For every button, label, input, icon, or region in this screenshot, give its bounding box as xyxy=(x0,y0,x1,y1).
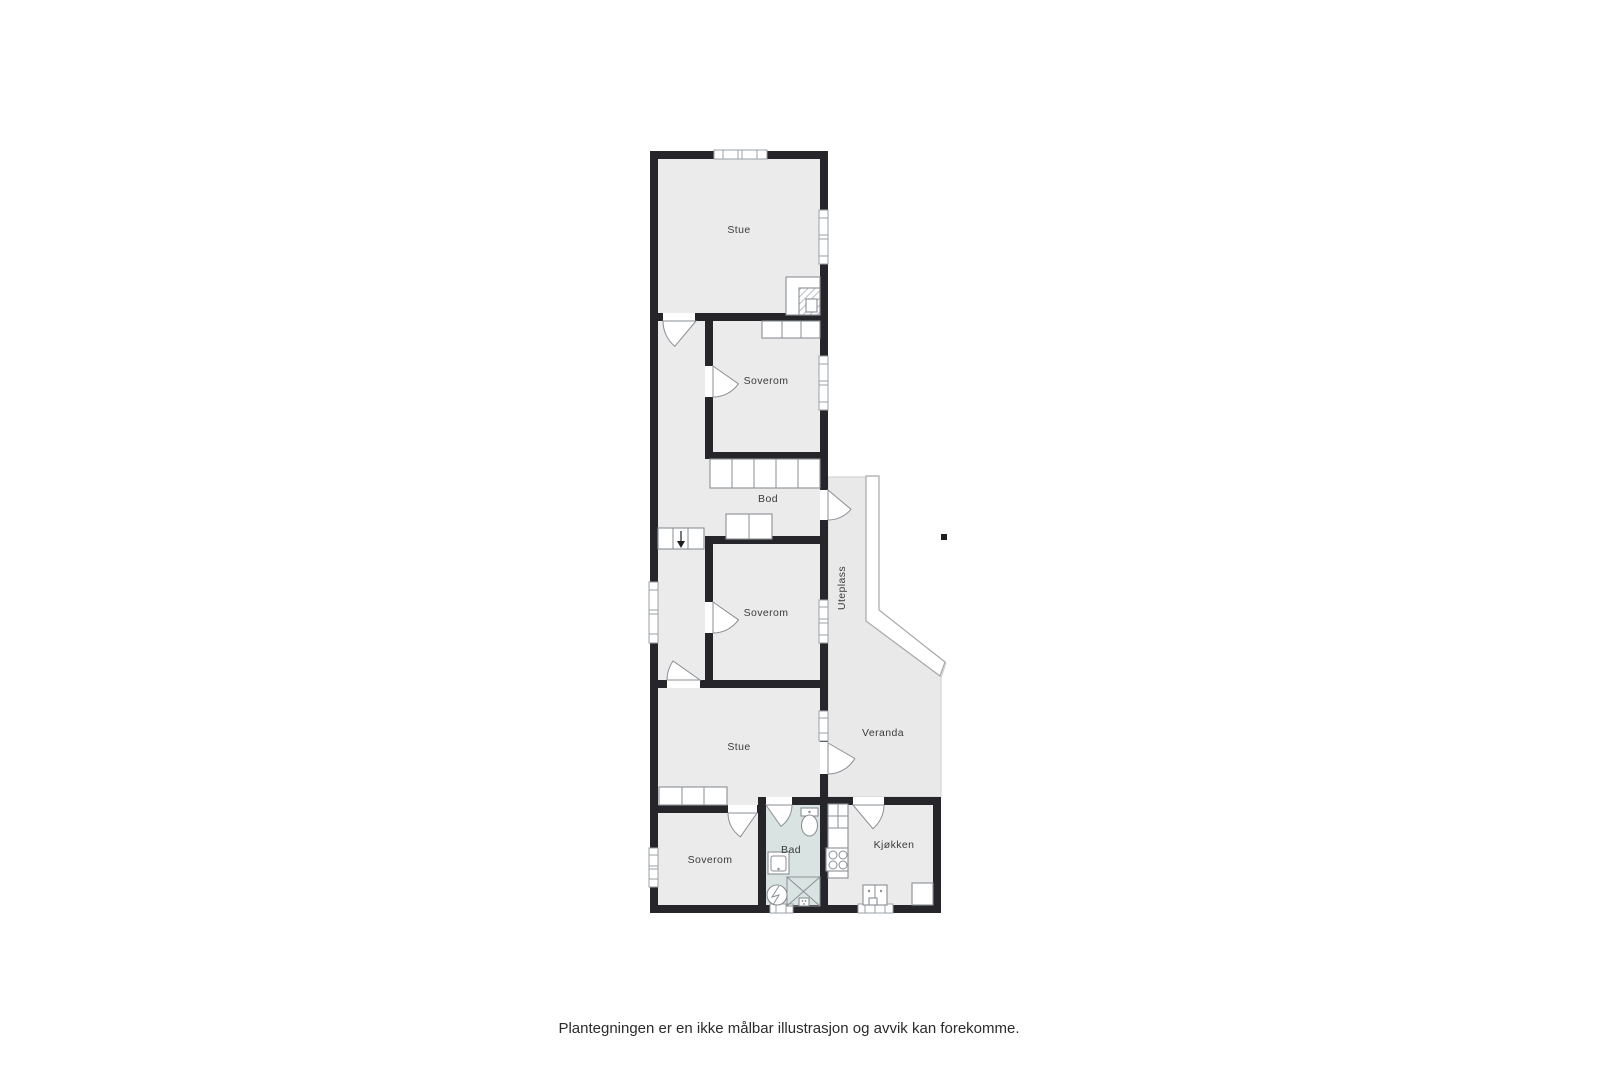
room-label-soverom-3: Soverom xyxy=(688,854,733,866)
floorplan-drawing xyxy=(0,0,1600,1067)
toilet-icon xyxy=(801,808,818,836)
window-icon xyxy=(819,711,828,741)
room-label-stue-2: Stue xyxy=(727,741,750,753)
window-icon xyxy=(819,210,828,264)
room-label-stue-1: Stue xyxy=(727,224,750,236)
room-label-kjokken: Kjøkken xyxy=(874,839,915,851)
stove-icon xyxy=(826,848,848,871)
room-label-uteplass: Uteplass xyxy=(836,566,848,610)
washing-machine-icon xyxy=(767,885,787,905)
shelving-icon xyxy=(710,459,820,488)
wardrobe-icon xyxy=(762,321,820,338)
window-icon xyxy=(714,150,767,159)
room-label-soverom-2: Soverom xyxy=(744,607,789,619)
room-label-veranda: Veranda xyxy=(862,727,904,739)
kitchen-sink-icon xyxy=(863,885,887,905)
room-label-bod: Bod xyxy=(758,493,778,505)
window-icon xyxy=(649,582,658,643)
window-icon xyxy=(649,848,658,887)
window-icon xyxy=(770,904,793,913)
position-marker xyxy=(941,534,947,540)
room-label-soverom-1: Soverom xyxy=(744,375,789,387)
cabinet-icon xyxy=(726,514,772,539)
floorplan-page: Stue Soverom Bod Soverom Uteplass Stue V… xyxy=(0,0,1600,1067)
fireplace-icon xyxy=(786,277,820,315)
room-label-bad: Bad xyxy=(781,844,801,856)
disclaimer-caption: Plantegningen er en ikke målbar illustra… xyxy=(0,1020,1578,1037)
window-icon xyxy=(819,356,828,410)
kitchen-counter-icon xyxy=(912,883,933,905)
stairs-down-icon xyxy=(658,528,704,549)
cabinet-icon xyxy=(659,787,727,805)
window-icon xyxy=(819,600,828,643)
